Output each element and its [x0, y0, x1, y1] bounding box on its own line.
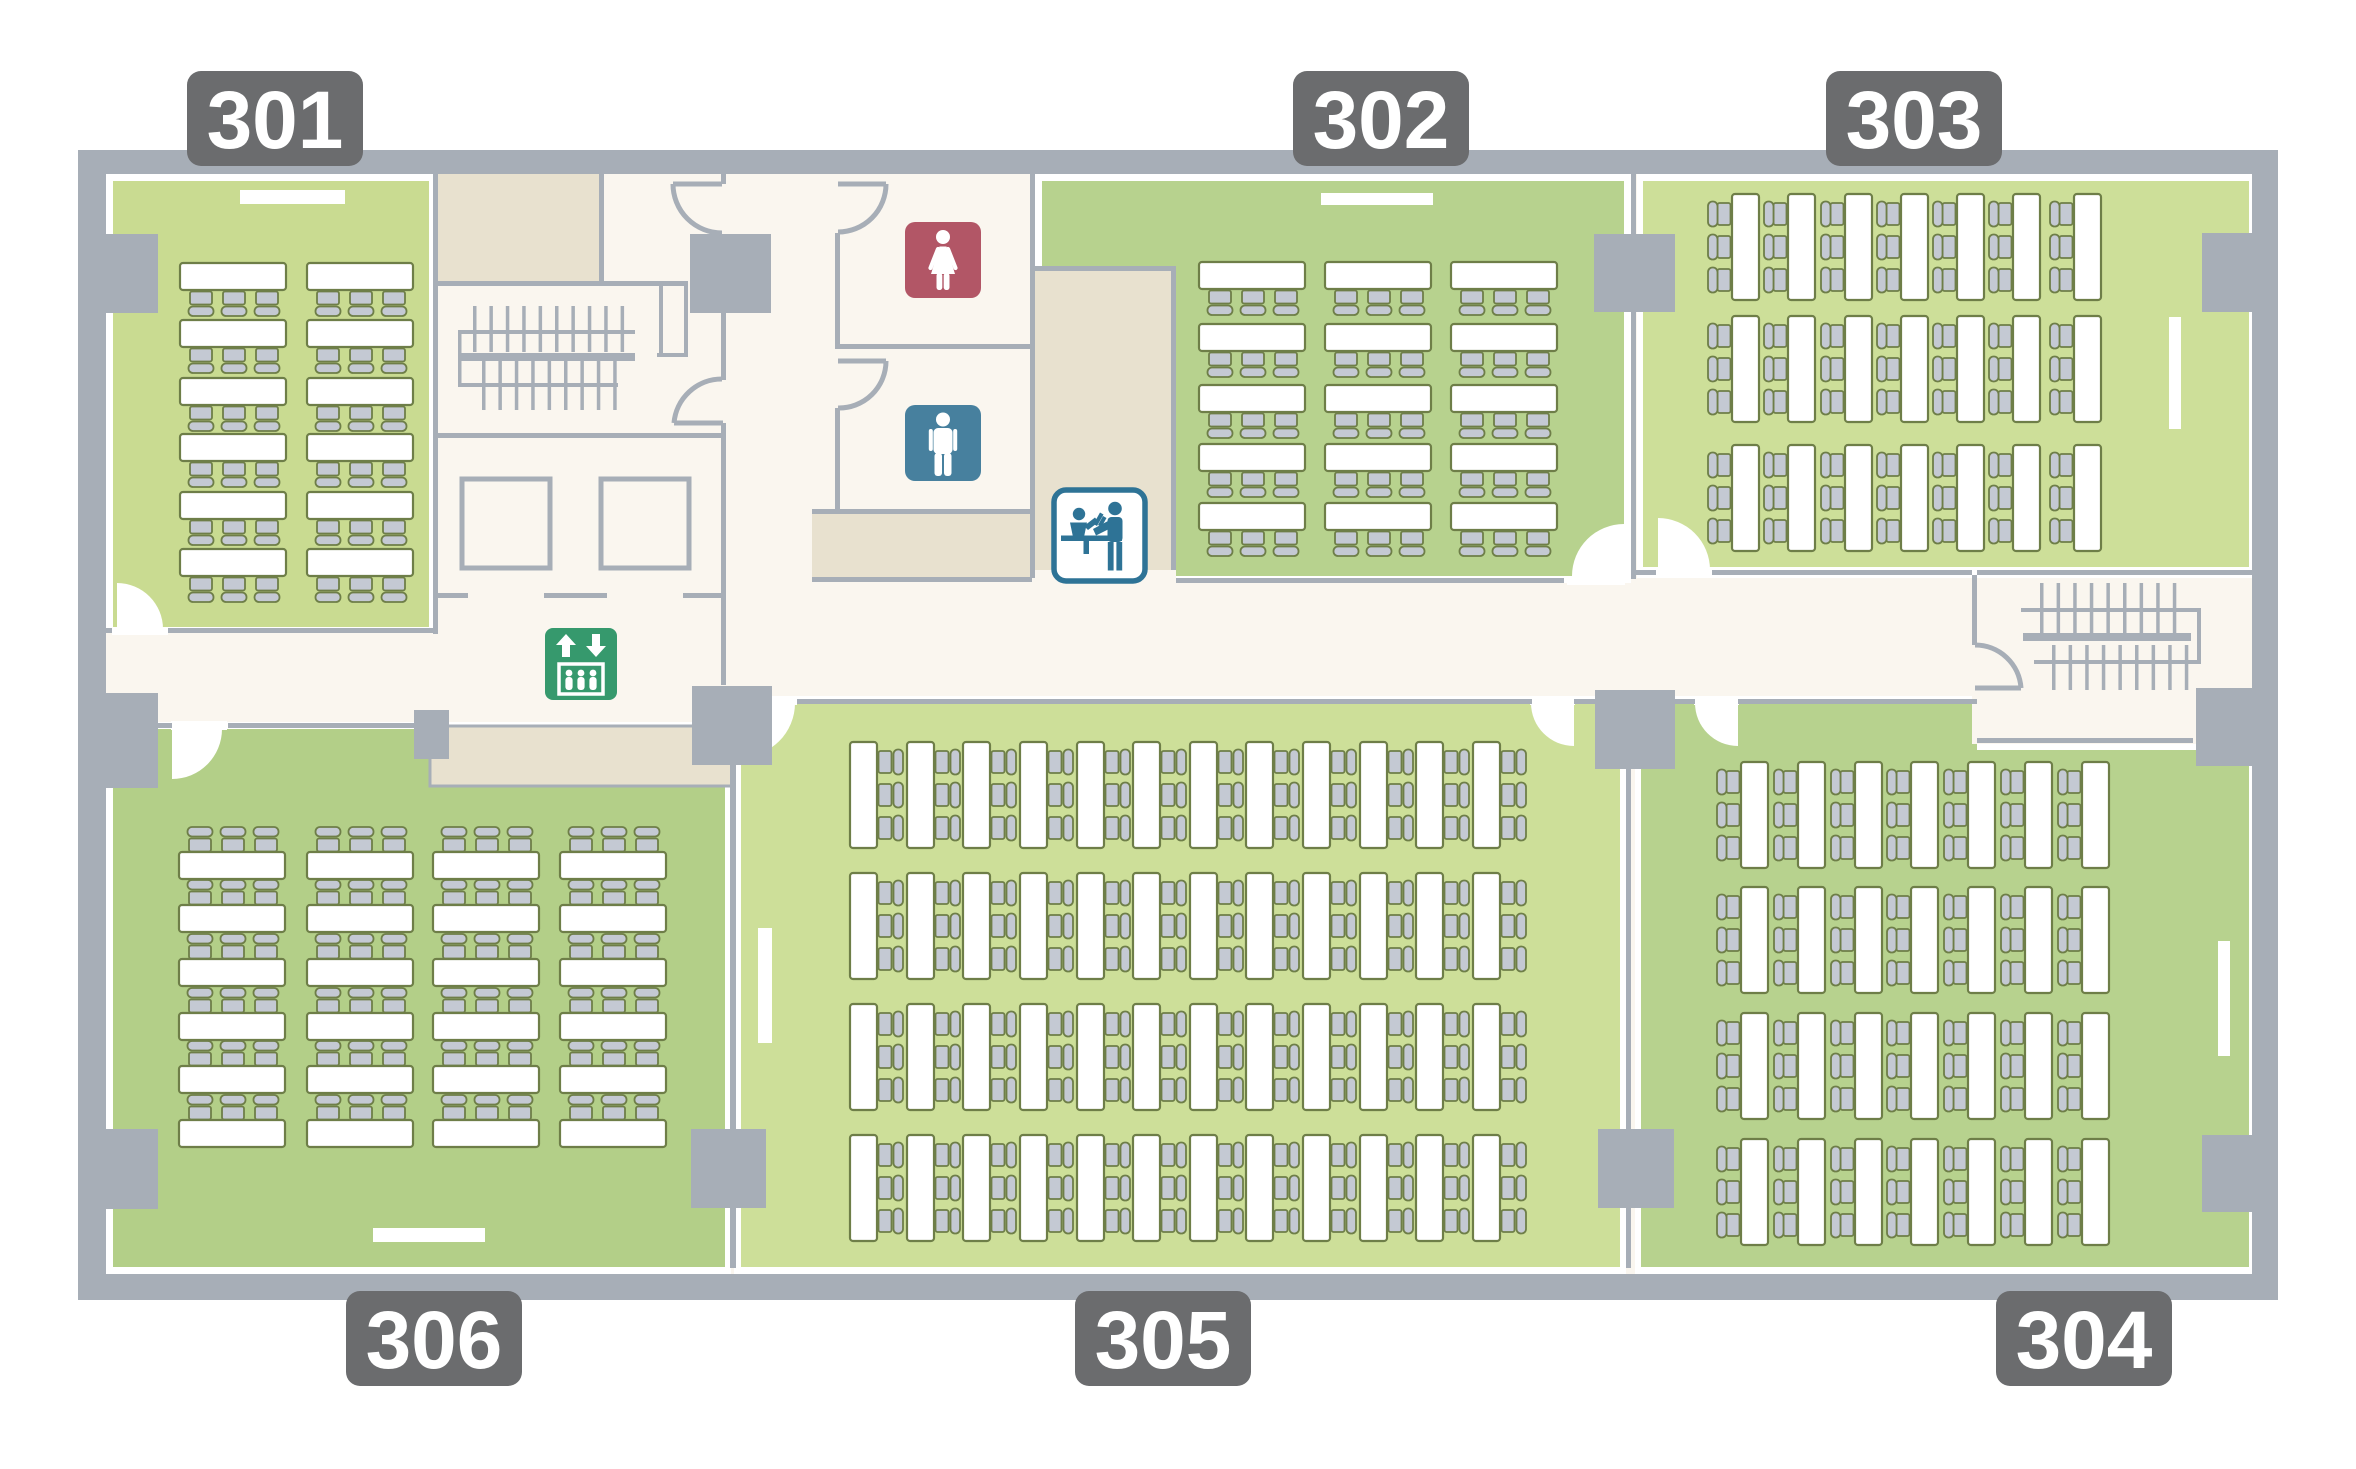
svg-text:302: 302 — [1313, 75, 1450, 166]
svg-text:303: 303 — [1846, 75, 1983, 166]
svg-text:305: 305 — [1095, 1295, 1232, 1386]
svg-text:301: 301 — [207, 75, 344, 166]
svg-text:306: 306 — [366, 1295, 503, 1386]
svg-text:304: 304 — [2016, 1295, 2153, 1386]
